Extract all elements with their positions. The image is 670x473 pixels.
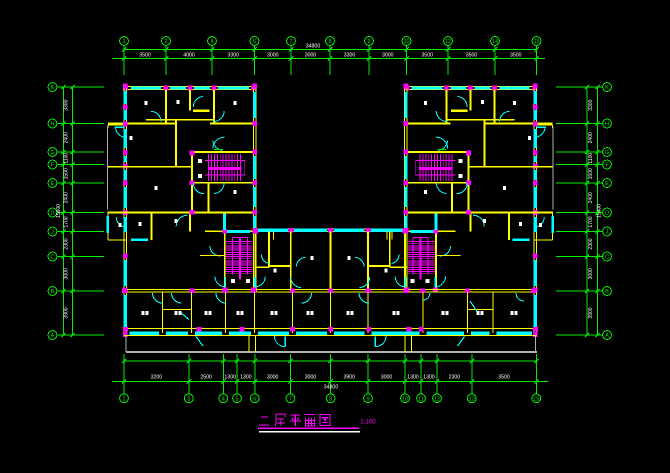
- svg-text:D: D: [51, 211, 55, 217]
- svg-text:E: E: [605, 181, 609, 187]
- svg-text:3: 3: [187, 397, 190, 403]
- svg-text:12: 12: [445, 39, 451, 45]
- svg-text:3000: 3000: [305, 52, 317, 58]
- svg-text:10: 10: [403, 39, 409, 45]
- svg-text:2300: 2300: [588, 238, 594, 249]
- svg-text:H: H: [605, 122, 609, 128]
- svg-text:3500: 3500: [139, 52, 151, 58]
- svg-text:15: 15: [533, 39, 539, 45]
- svg-text:13: 13: [469, 397, 475, 403]
- svg-text:2300: 2300: [64, 238, 70, 249]
- svg-text:3000: 3000: [382, 52, 394, 58]
- svg-text:1500: 1500: [64, 168, 70, 179]
- svg-text:3500: 3500: [510, 52, 522, 58]
- svg-text:8: 8: [328, 39, 331, 45]
- svg-text:3000: 3000: [588, 268, 594, 279]
- svg-text:8: 8: [329, 397, 332, 403]
- svg-text:6: 6: [253, 39, 256, 45]
- svg-text:2300: 2300: [449, 375, 461, 381]
- svg-text:34800: 34800: [306, 44, 321, 50]
- svg-text:3900: 3900: [64, 307, 70, 318]
- svg-text:4000: 4000: [183, 52, 195, 58]
- svg-text:A: A: [51, 333, 55, 339]
- svg-text:3000: 3000: [267, 52, 279, 58]
- svg-text:3000: 3000: [381, 375, 393, 381]
- svg-text:1100: 1100: [588, 153, 594, 164]
- svg-text:6: 6: [253, 397, 256, 403]
- svg-text:3300: 3300: [227, 52, 239, 58]
- svg-text:3900: 3900: [588, 307, 594, 318]
- svg-text:E: E: [51, 181, 55, 187]
- svg-text:J: J: [606, 230, 609, 236]
- svg-text:A: A: [605, 333, 609, 339]
- svg-text:15600: 15600: [56, 204, 62, 218]
- svg-text:1500: 1500: [588, 168, 594, 179]
- svg-text:B: B: [605, 289, 609, 295]
- svg-text:3200: 3200: [151, 375, 163, 381]
- svg-text:3300: 3300: [344, 52, 356, 58]
- svg-text:4: 4: [210, 39, 213, 45]
- svg-text:3000: 3000: [305, 375, 317, 381]
- svg-text:J: J: [51, 230, 54, 236]
- svg-text:G: G: [50, 150, 54, 156]
- svg-text:K: K: [51, 85, 55, 91]
- svg-text:9: 9: [366, 397, 369, 403]
- svg-text:2400: 2400: [588, 192, 594, 203]
- svg-text:7: 7: [289, 39, 292, 45]
- svg-text:11: 11: [418, 397, 424, 403]
- svg-text:10: 10: [402, 397, 408, 403]
- svg-text:15: 15: [533, 397, 539, 403]
- svg-text:5: 5: [235, 397, 238, 403]
- svg-text:C: C: [51, 255, 55, 261]
- svg-text:1700: 1700: [588, 216, 594, 227]
- svg-text:12: 12: [434, 397, 440, 403]
- svg-text:1300: 1300: [407, 375, 419, 381]
- svg-text:3500: 3500: [466, 52, 478, 58]
- svg-text:34800: 34800: [324, 385, 339, 391]
- svg-text:1:100: 1:100: [360, 419, 376, 426]
- svg-text:2: 2: [164, 39, 167, 45]
- svg-text:B: B: [51, 289, 55, 295]
- svg-text:1300: 1300: [423, 375, 435, 381]
- svg-text:2400: 2400: [588, 132, 594, 143]
- svg-text:1100: 1100: [64, 153, 70, 164]
- svg-text:3300: 3300: [64, 99, 70, 110]
- svg-text:3500: 3500: [498, 375, 510, 381]
- svg-text:3000: 3000: [64, 268, 70, 279]
- svg-text:9: 9: [367, 39, 370, 45]
- svg-text:G: G: [605, 150, 609, 156]
- svg-text:3500: 3500: [421, 52, 433, 58]
- svg-text:2400: 2400: [64, 192, 70, 203]
- svg-text:3000: 3000: [267, 375, 279, 381]
- svg-text:14: 14: [492, 39, 498, 45]
- svg-text:1700: 1700: [64, 216, 70, 227]
- svg-text:H: H: [51, 122, 55, 128]
- svg-text:2500: 2500: [200, 375, 212, 381]
- svg-text:3900: 3900: [344, 375, 356, 381]
- svg-text:1300: 1300: [224, 375, 236, 381]
- svg-text:1: 1: [122, 39, 125, 45]
- svg-text:K: K: [605, 85, 609, 91]
- svg-text:C: C: [605, 255, 609, 261]
- svg-text:3300: 3300: [588, 99, 594, 110]
- svg-text:7: 7: [289, 397, 292, 403]
- svg-text:4: 4: [222, 397, 225, 403]
- svg-text:1300: 1300: [240, 375, 252, 381]
- svg-text:2400: 2400: [64, 132, 70, 143]
- svg-text:1: 1: [122, 397, 125, 403]
- svg-text:D: D: [605, 211, 609, 217]
